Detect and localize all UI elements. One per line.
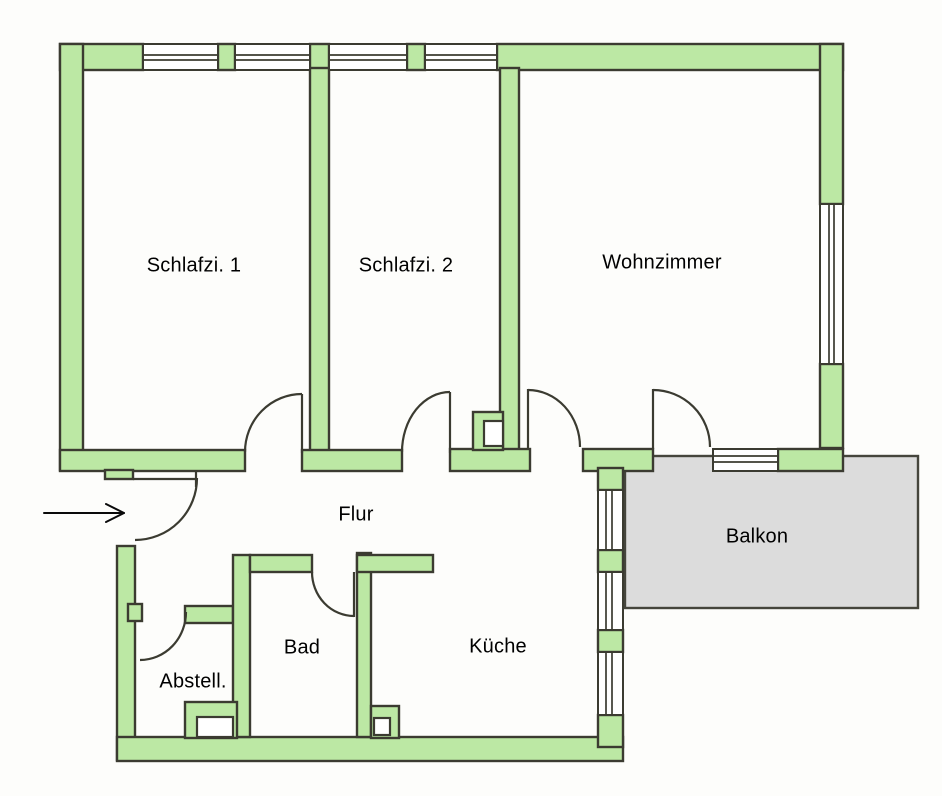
floorplan-canvas: Schlafzi. 1 Schlafzi. 2 Wohnzimmer Flur …: [0, 0, 942, 796]
room-label-schlafzimmer-2: Schlafzi. 2: [359, 255, 453, 278]
walls-group: [60, 44, 843, 761]
floorplan-drawing: [0, 0, 942, 796]
room-label-balkon: Balkon: [726, 526, 788, 549]
entrance-arrow-icon: [44, 504, 124, 522]
room-label-kueche: Küche: [469, 636, 527, 659]
room-label-wohnzimmer: Wohnzimmer: [602, 252, 721, 275]
room-label-schlafzimmer-1: Schlafzi. 1: [147, 255, 241, 278]
room-label-abstellraum: Abstell.: [159, 671, 226, 694]
room-label-bad: Bad: [284, 637, 320, 660]
room-label-flur: Flur: [338, 504, 373, 527]
